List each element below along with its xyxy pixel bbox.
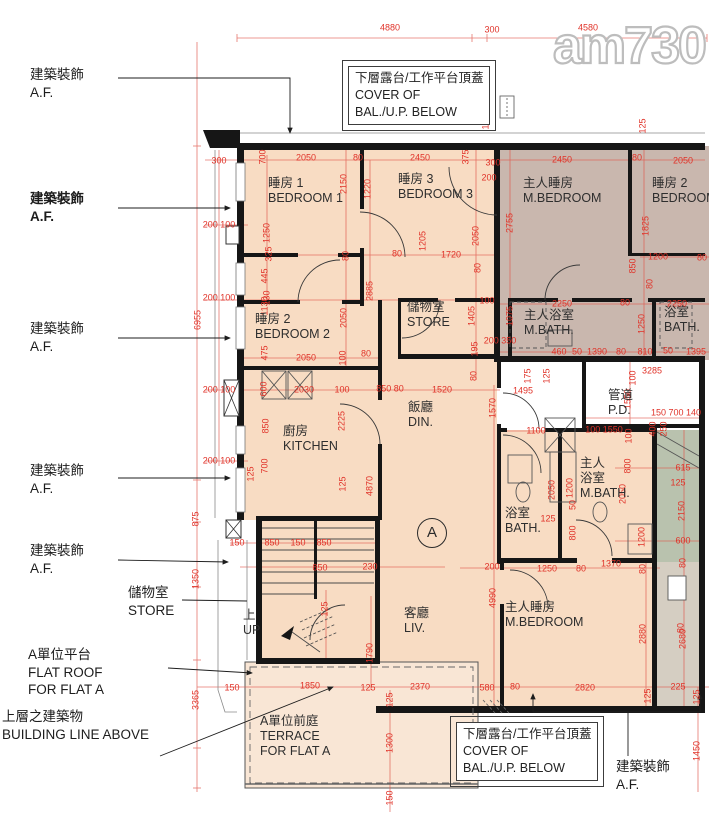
room-label-m-bath: 主人浴室M.BATH. bbox=[580, 456, 630, 500]
dimension-label: 615 bbox=[675, 464, 690, 473]
dimension-label: 2050 bbox=[296, 354, 316, 363]
dimension-label: 80 bbox=[679, 558, 688, 568]
annotation-line: A.F. bbox=[30, 560, 84, 578]
dimension-label: 250 bbox=[660, 421, 669, 436]
room-label-store-upper: 儲物室STORE bbox=[407, 300, 450, 330]
room-label-line: BEDROOM 2 bbox=[652, 191, 709, 206]
annotation-line: A.F. bbox=[30, 208, 84, 226]
dimension-label: 2370 bbox=[410, 683, 430, 692]
dimension-label: 1395 bbox=[686, 348, 706, 357]
annotation-label: 建築裝飾A.F. bbox=[30, 66, 84, 101]
dimension-label: 150 bbox=[229, 539, 244, 548]
dimension-label: 80 bbox=[342, 251, 351, 261]
dimension-label: 200 100 bbox=[203, 386, 236, 395]
annotation-label: 建築裝飾A.F. bbox=[616, 758, 670, 793]
dimension-label: 875 bbox=[192, 511, 201, 526]
dimension-label: 2880 bbox=[639, 624, 648, 644]
dimension-label: 460 bbox=[551, 348, 566, 357]
dimension-label: 1370 bbox=[601, 560, 621, 569]
room-label-line: M.BATH. bbox=[524, 323, 574, 338]
dimension-label: 850 bbox=[316, 539, 331, 548]
dimension-label: 1825 bbox=[642, 216, 651, 236]
dimension-label: 700 bbox=[259, 149, 268, 164]
dimension-label: 150 bbox=[290, 539, 305, 548]
room-label-m-bath-other: 主人浴室M.BATH. bbox=[524, 308, 574, 338]
room-label-pipe-duct: 管道P.D. bbox=[608, 388, 633, 418]
annotation-line: 建築裝飾 bbox=[30, 462, 84, 480]
dimension-label: 3365 bbox=[192, 690, 201, 710]
room-label-kitchen: 廚房KITCHEN bbox=[283, 424, 338, 454]
dimension-label: 80 bbox=[392, 250, 402, 259]
room-label-dining: 飯廳DIN. bbox=[408, 400, 433, 430]
dimension-label: 1100 bbox=[526, 427, 545, 436]
annotation-line: A.F. bbox=[30, 338, 84, 356]
dimension-label: 200 bbox=[481, 174, 496, 183]
dimension-label: 125 bbox=[540, 515, 555, 524]
dimension-label: 1200 bbox=[648, 253, 668, 262]
dimension-label: 1075 bbox=[506, 306, 515, 326]
dimension-label: 150 bbox=[386, 790, 395, 805]
dimension-label: 2450 bbox=[410, 154, 430, 163]
annotation-label: 建築裝飾A.F. bbox=[30, 320, 84, 355]
dimension-label: 4990 bbox=[489, 588, 498, 608]
dimension-label: 80 bbox=[353, 154, 363, 163]
annotation-label: 儲物室STORE bbox=[128, 584, 174, 619]
room-label-line: 睡房 3 bbox=[398, 172, 473, 187]
room-label-m-bedroom-other: 主人睡房M.BEDROOM bbox=[523, 176, 601, 206]
cover-box-line: BAL./U.P. BELOW bbox=[355, 104, 483, 121]
room-label-line: 主人睡房 bbox=[505, 600, 583, 615]
room-label-line: 管道 bbox=[608, 388, 633, 403]
annotation-line: 建築裝飾 bbox=[30, 190, 84, 208]
cover-box-line: COVER OF bbox=[355, 87, 483, 104]
annotation-line: 建築裝飾 bbox=[616, 758, 670, 776]
room-label-bedroom-2: 睡房 2BEDROOM 2 bbox=[255, 312, 330, 342]
dimension-label: 4870 bbox=[366, 476, 375, 496]
dimension-label: 1495 bbox=[513, 387, 533, 396]
room-label-line: 浴室 bbox=[580, 471, 630, 486]
dimension-label: 80 bbox=[677, 623, 686, 633]
room-label-line: 廚房 bbox=[283, 424, 338, 439]
room-label-line: 主人 bbox=[580, 456, 630, 471]
dimension-label: 100 bbox=[629, 370, 638, 385]
room-label-line: KITCHEN bbox=[283, 439, 338, 454]
am730-watermark: am730 bbox=[553, 16, 705, 76]
dimension-label: 300 bbox=[211, 157, 226, 166]
cover-box-line: 下層露台/工作平台頂蓋 bbox=[355, 70, 483, 87]
annotation-label: 建築裝飾A.F. bbox=[30, 190, 84, 225]
dimension-label: 700 bbox=[261, 458, 270, 473]
dimension-label: 2820 bbox=[575, 684, 595, 693]
dimension-label: 800 bbox=[569, 525, 578, 540]
dimension-label: 1790 bbox=[366, 643, 375, 663]
dimension-label: 125 bbox=[321, 601, 330, 616]
dimension-label: 580 bbox=[479, 684, 494, 693]
dimension-label: 125 bbox=[339, 476, 348, 491]
dimension-label: 400 bbox=[649, 421, 658, 436]
dimension-label: 200 350 bbox=[484, 337, 517, 346]
room-label-terrace: A單位前庭TERRACEFOR FLAT A bbox=[260, 714, 330, 758]
dimension-label: 200 100 bbox=[203, 457, 236, 466]
room-label-line: LIV. bbox=[404, 621, 429, 636]
room-label-line: BATH. bbox=[505, 521, 541, 536]
dimension-label: 1450 bbox=[693, 741, 702, 761]
dimension-label: 50 bbox=[663, 347, 673, 356]
dimension-label: 850 bbox=[264, 539, 279, 548]
dimension-label: 2225 bbox=[338, 411, 347, 431]
cover-of-balcony-box: 下層露台/工作平台頂蓋COVER OFBAL./U.P. BELOW bbox=[456, 722, 598, 781]
dimension-label: 4880 bbox=[380, 24, 400, 33]
room-label-line: M.BATH. bbox=[580, 486, 630, 501]
dimension-label: 1250 bbox=[638, 314, 647, 334]
room-label-line: 飯廳 bbox=[408, 400, 433, 415]
room-label-line: 睡房 1 bbox=[268, 176, 343, 191]
room-label-line: BATH. bbox=[664, 320, 700, 335]
dimension-label: 125 bbox=[639, 118, 648, 133]
dimension-label: 2050 bbox=[296, 154, 316, 163]
annotation-line: FLAT ROOF bbox=[28, 664, 104, 682]
room-label-line: M.BEDROOM bbox=[523, 191, 601, 206]
dimension-label: 2050 bbox=[548, 480, 557, 500]
dimension-label: 2885 bbox=[366, 281, 375, 301]
dimension-label: 850 bbox=[262, 418, 271, 433]
dimension-label: 325 bbox=[265, 246, 274, 261]
labels-layer: 4880300458030070020508024503753002002450… bbox=[0, 0, 709, 816]
dimension-label: 100 bbox=[625, 428, 634, 443]
room-label-stair-up: 上UP bbox=[243, 608, 260, 638]
annotation-line: 儲物室 bbox=[128, 584, 174, 602]
dimension-label: 100 bbox=[334, 386, 349, 395]
dimension-label: 80 bbox=[616, 348, 626, 357]
annotation-line: A.F. bbox=[616, 776, 670, 794]
dimension-label: 125 bbox=[644, 688, 653, 703]
dimension-label: 100 bbox=[339, 350, 348, 365]
dimension-label: 1205 bbox=[419, 231, 428, 251]
dimension-label: 200 100 bbox=[203, 221, 236, 230]
dimension-label: 125 bbox=[360, 684, 375, 693]
dimension-label: 80 bbox=[639, 564, 648, 574]
dimension-label: 80 bbox=[470, 371, 479, 381]
dimension-label: 1350 bbox=[192, 569, 201, 589]
room-label-line: 浴室 bbox=[664, 305, 700, 320]
room-label-bath-other: 浴室BATH. bbox=[664, 305, 700, 335]
room-label-line: 儲物室 bbox=[407, 300, 450, 315]
annotation-line: 建築裝飾 bbox=[30, 320, 84, 338]
annotation-line: BUILDING LINE ABOVE bbox=[2, 726, 149, 744]
dimension-label: 1200 bbox=[566, 478, 575, 498]
room-label-bedroom-2-other: 睡房 2BEDROOM 2 bbox=[652, 176, 709, 206]
dimension-label: 2050 bbox=[472, 226, 481, 246]
room-label-line: 客廳 bbox=[404, 606, 429, 621]
dimension-label: 125 bbox=[247, 466, 256, 481]
dimension-label: 125 bbox=[543, 368, 552, 383]
dimension-label: 600 bbox=[675, 537, 690, 546]
dimension-label: 2030 bbox=[294, 386, 314, 395]
dimension-label: 50 bbox=[569, 500, 578, 510]
annotation-label: 建築裝飾A.F. bbox=[30, 462, 84, 497]
dimension-label: 375 bbox=[462, 149, 471, 164]
dimension-label: 125 bbox=[670, 479, 685, 488]
dimension-label: 1220 bbox=[364, 179, 373, 199]
dimension-label: 1720 bbox=[441, 251, 461, 260]
dimension-label: 80 bbox=[510, 683, 520, 692]
room-label-line: P.D. bbox=[608, 403, 633, 418]
dimension-label: 475 bbox=[261, 345, 270, 360]
room-label-line: M.BEDROOM bbox=[505, 615, 583, 630]
dimension-label: 80 bbox=[632, 154, 642, 163]
dimension-label: 1850 bbox=[300, 682, 320, 691]
dimension-label: 2450 bbox=[552, 156, 572, 165]
dimension-label: 850 80 bbox=[376, 385, 404, 394]
dimension-label: 200 100 bbox=[203, 294, 236, 303]
dimension-label: 850 bbox=[312, 564, 327, 573]
dimension-label: 1570 bbox=[489, 398, 498, 418]
room-label-bedroom-3: 睡房 3BEDROOM 3 bbox=[398, 172, 473, 202]
dimension-label: 125 bbox=[386, 692, 395, 707]
annotation-label: A單位平台FLAT ROOFFOR FLAT A bbox=[28, 646, 104, 699]
room-label-bath: 浴室BATH. bbox=[505, 506, 541, 536]
room-label-line: 睡房 2 bbox=[255, 312, 330, 327]
annotation-line: 上層之建築物 bbox=[2, 708, 149, 726]
dimension-label: 100 bbox=[479, 297, 494, 306]
annotation-line: FOR FLAT A bbox=[28, 681, 104, 699]
room-label-line: UP bbox=[243, 623, 260, 638]
annotation-line: STORE bbox=[128, 602, 174, 620]
dimension-label: 1250 bbox=[537, 565, 557, 574]
dimension-label: 1405 bbox=[468, 306, 477, 326]
dimension-label: 225 bbox=[670, 683, 685, 692]
dimension-label: 1250 bbox=[263, 223, 272, 243]
dimension-label: 230 bbox=[362, 563, 377, 572]
room-label-m-bedroom: 主人睡房M.BEDROOM bbox=[505, 600, 583, 630]
dimension-label: 80 bbox=[646, 279, 655, 289]
dimension-label: 150 bbox=[224, 684, 239, 693]
dimension-label: 850 bbox=[629, 258, 638, 273]
dimension-label: 200 bbox=[484, 563, 499, 572]
dimension-label: 1300 bbox=[386, 733, 395, 753]
room-label-line: 上 bbox=[243, 608, 260, 623]
dimension-label: 2050 bbox=[340, 308, 349, 328]
room-label-line: DIN. bbox=[408, 415, 433, 430]
room-label-living: 客廳LIV. bbox=[404, 606, 429, 636]
room-label-line: BEDROOM 2 bbox=[255, 327, 330, 342]
cover-of-balcony-box: 下層露台/工作平台頂蓋COVER OFBAL./U.P. BELOW bbox=[348, 66, 490, 125]
room-label-bedroom-1: 睡房 1BEDROOM 1 bbox=[268, 176, 343, 206]
cover-box-line: BAL./U.P. BELOW bbox=[463, 760, 591, 777]
dimension-label: 1390 bbox=[587, 348, 607, 357]
room-label-line: STORE bbox=[407, 315, 450, 330]
dimension-label: 2150 bbox=[678, 501, 687, 521]
dimension-label: 810 bbox=[637, 348, 652, 357]
dimension-label: 80 bbox=[697, 254, 707, 263]
dimension-label: 80 bbox=[361, 350, 371, 359]
dimension-label: 2755 bbox=[506, 213, 515, 233]
dimension-label: 1200 bbox=[638, 527, 647, 547]
room-label-line: 主人浴室 bbox=[524, 308, 574, 323]
unit-a-marker: A bbox=[417, 518, 447, 548]
dimension-label: 300 bbox=[485, 159, 500, 168]
cover-box-line: 下層露台/工作平台頂蓋 bbox=[463, 726, 591, 743]
annotation-line: A.F. bbox=[30, 480, 84, 498]
room-label-line: 主人睡房 bbox=[523, 176, 601, 191]
annotation-line: 建築裝飾 bbox=[30, 542, 84, 560]
dimension-label: 2050 bbox=[673, 157, 693, 166]
dimension-label: 3285 bbox=[642, 367, 662, 376]
annotation-label: 建築裝飾A.F. bbox=[30, 542, 84, 577]
room-label-line: 浴室 bbox=[505, 506, 541, 521]
room-label-line: TERRACE bbox=[260, 729, 330, 744]
dimension-label: 300 bbox=[484, 26, 499, 35]
room-label-line: BEDROOM 1 bbox=[268, 191, 343, 206]
dimension-label: 6955 bbox=[194, 310, 203, 330]
dimension-label: 195 bbox=[471, 341, 480, 356]
room-label-line: 睡房 2 bbox=[652, 176, 709, 191]
dimension-label: 80 bbox=[576, 565, 586, 574]
dimension-label: 80 bbox=[474, 263, 483, 273]
dimension-label: 445 bbox=[261, 268, 270, 283]
floor-plan-page: 4880300458030070020508024503753002002450… bbox=[0, 0, 709, 816]
annotation-line: A.F. bbox=[30, 84, 84, 102]
annotation-label: 上層之建築物BUILDING LINE ABOVE bbox=[2, 708, 149, 743]
dimension-label: 50 bbox=[572, 348, 582, 357]
dimension-label: 150 700 140 bbox=[651, 409, 701, 418]
annotation-line: A單位平台 bbox=[28, 646, 104, 664]
dimension-label: 1520 bbox=[432, 386, 452, 395]
room-label-line: BEDROOM 3 bbox=[398, 187, 473, 202]
cover-box-line: COVER OF bbox=[463, 743, 591, 760]
room-label-line: A單位前庭 bbox=[260, 714, 330, 729]
annotation-line: 建築裝飾 bbox=[30, 66, 84, 84]
dimension-label: 600 bbox=[260, 381, 269, 396]
room-label-line: FOR FLAT A bbox=[260, 744, 330, 759]
dimension-label: 100 1550 bbox=[585, 426, 623, 435]
dimension-label: 125 bbox=[693, 689, 702, 704]
dimension-label: 175 bbox=[524, 368, 533, 383]
dimension-label: 80 bbox=[620, 299, 630, 308]
